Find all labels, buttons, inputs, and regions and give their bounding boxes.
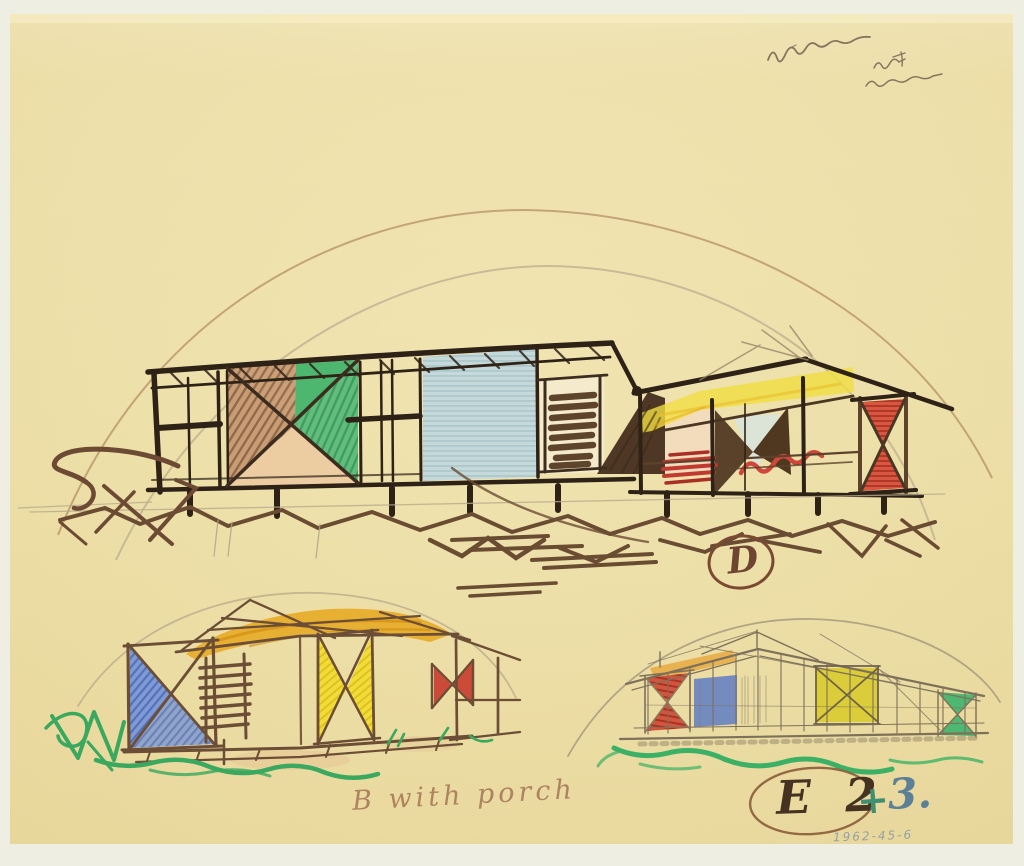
accession-number: 1962-45-6 bbox=[833, 828, 914, 845]
label-d: D bbox=[725, 537, 760, 582]
label-three: 3. bbox=[887, 768, 933, 819]
label-plus: + bbox=[855, 776, 890, 823]
artwork-scan: D B with porch E 2 + 3. 1962-45-6 bbox=[0, 0, 1024, 866]
drawing-svg bbox=[0, 0, 1024, 866]
